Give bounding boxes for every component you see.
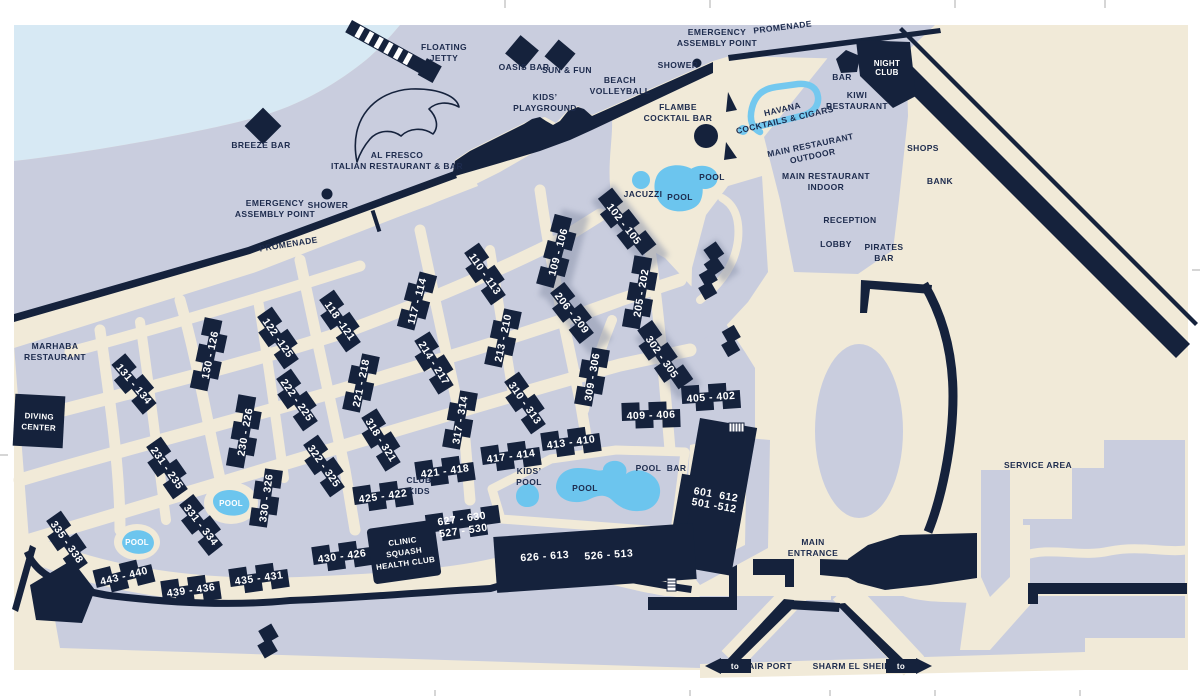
svg-text:MAIN: MAIN [801, 537, 824, 547]
svg-text:to: to [731, 662, 739, 671]
svg-text:CLUB: CLUB [406, 475, 431, 485]
svg-text:ITALIAN RESTAURANT & BAR: ITALIAN RESTAURANT & BAR [331, 161, 463, 171]
svg-text:SHOWER: SHOWER [658, 60, 699, 70]
svg-text:PLAYGROUND: PLAYGROUND [513, 103, 577, 113]
svg-text:JETTY: JETTY [430, 53, 458, 63]
svg-text:POOL: POOL [125, 538, 149, 547]
svg-text:POOL BAR: POOL BAR [636, 463, 687, 473]
svg-text:RESTAURANT: RESTAURANT [826, 101, 888, 111]
svg-text:to: to [897, 662, 905, 671]
svg-text:SUN & FUN: SUN & FUN [542, 65, 592, 75]
svg-text:RECEPTION: RECEPTION [823, 215, 876, 225]
svg-text:ASSEMBLY POINT: ASSEMBLY POINT [677, 38, 758, 48]
svg-text:SERVICE AREA: SERVICE AREA [1004, 460, 1072, 470]
svg-text:SHOPS: SHOPS [907, 143, 939, 153]
svg-text:VOLLEYBALL: VOLLEYBALL [590, 86, 651, 96]
svg-text:CENTER: CENTER [21, 422, 56, 433]
svg-text:ENTRANCE: ENTRANCE [788, 548, 838, 558]
svg-text:NIGHT: NIGHT [874, 59, 900, 68]
svg-text:EMERGENCY: EMERGENCY [246, 198, 304, 208]
svg-text:POOL: POOL [667, 192, 693, 202]
svg-text:CLUB: CLUB [875, 68, 898, 77]
svg-text:LOBBY: LOBBY [820, 239, 852, 249]
svg-text:KIDS’: KIDS’ [533, 92, 558, 102]
svg-text:409 - 406: 409 - 406 [626, 409, 675, 423]
svg-text:BREEZE BAR: BREEZE BAR [231, 140, 290, 150]
svg-text:BAR: BAR [832, 72, 852, 82]
svg-text:BANK: BANK [927, 176, 954, 186]
svg-text:JACUZZI: JACUZZI [624, 189, 663, 199]
svg-text:MARHABA: MARHABA [32, 341, 79, 351]
svg-text:ASSEMBLY POINT: ASSEMBLY POINT [235, 209, 316, 219]
svg-text:SHARM EL SHEIKH: SHARM EL SHEIKH [813, 661, 898, 671]
svg-text:INDOOR: INDOOR [808, 182, 844, 192]
svg-text:AL FRESCO: AL FRESCO [371, 150, 424, 160]
svg-text:BEACH: BEACH [604, 75, 636, 85]
svg-text:EMERGENCY: EMERGENCY [688, 27, 746, 37]
svg-text:POOL: POOL [516, 477, 542, 487]
svg-text:POOL: POOL [219, 499, 243, 508]
svg-text:DIVING: DIVING [24, 411, 54, 422]
svg-text:AIR PORT: AIR PORT [748, 661, 792, 671]
svg-text:FLOATING: FLOATING [421, 42, 467, 52]
svg-text:MAIN RESTAURANT: MAIN RESTAURANT [782, 171, 870, 181]
svg-text:KIWI: KIWI [847, 90, 867, 100]
svg-text:SHOWER: SHOWER [308, 200, 349, 210]
svg-text:POOL: POOL [699, 172, 725, 182]
svg-text:POOL: POOL [572, 483, 598, 493]
svg-text:BAR: BAR [874, 253, 894, 263]
svg-text:COCKTAIL BAR: COCKTAIL BAR [644, 113, 713, 123]
svg-text:KIDS’: KIDS’ [517, 466, 542, 476]
svg-text:KIDS: KIDS [408, 486, 430, 496]
svg-text:RESTAURANT: RESTAURANT [24, 352, 86, 362]
svg-text:FLAMBE: FLAMBE [659, 102, 697, 112]
svg-text:PIRATES: PIRATES [864, 242, 903, 252]
